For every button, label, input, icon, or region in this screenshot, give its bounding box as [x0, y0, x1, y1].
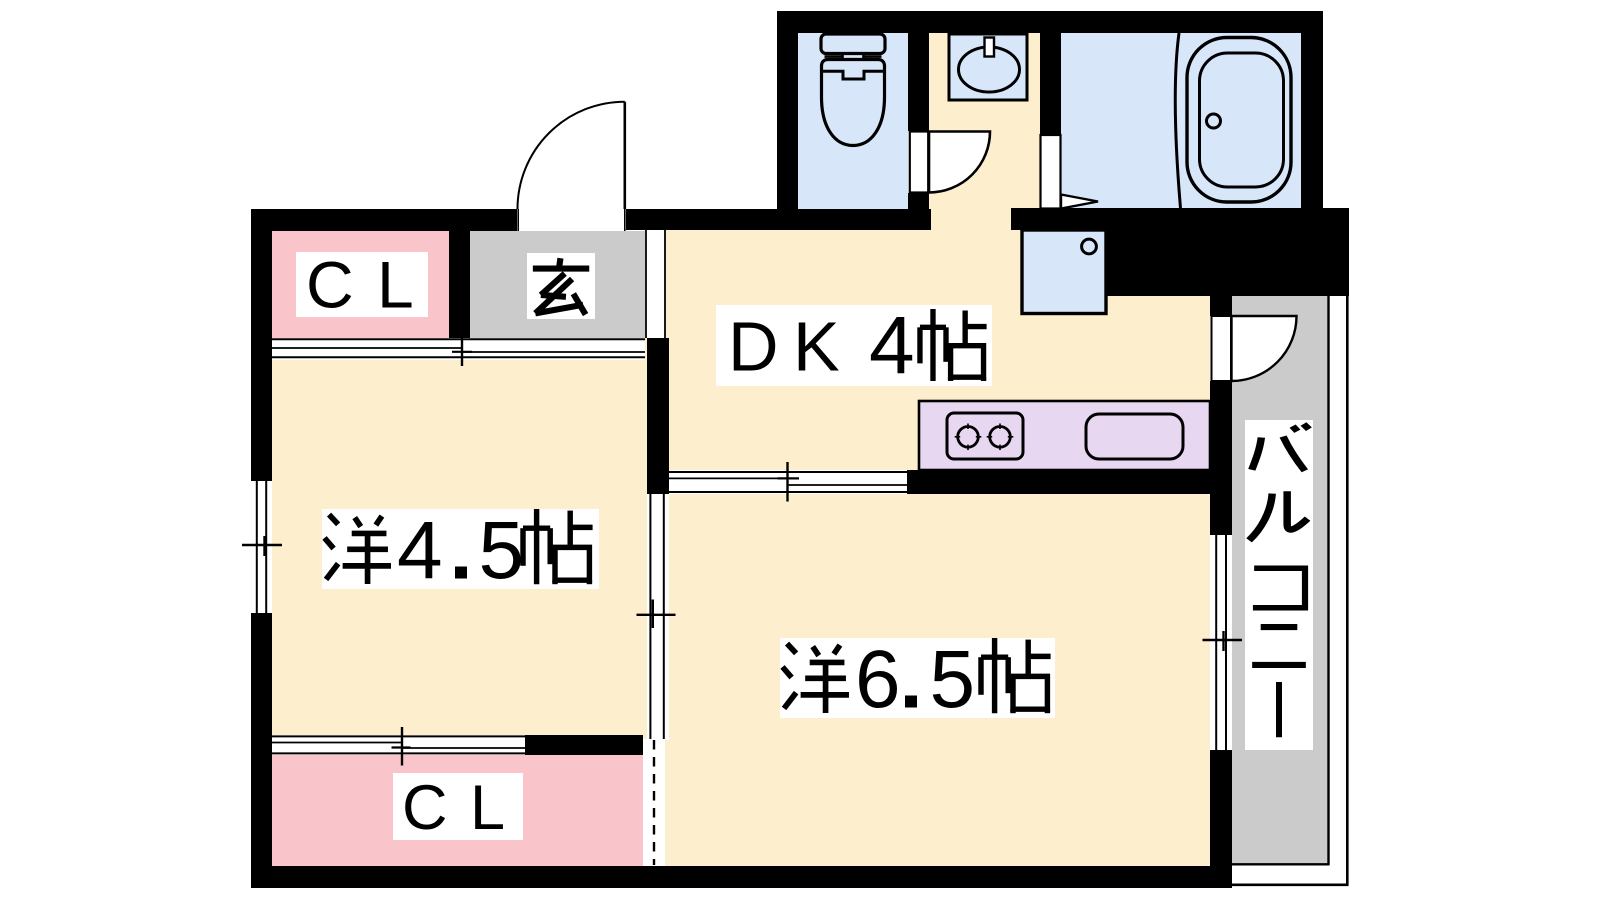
svg-text:C: C: [306, 248, 354, 322]
svg-text:L: L: [377, 248, 414, 322]
svg-text:6: 6: [855, 634, 901, 725]
svg-text:C: C: [402, 773, 448, 843]
svg-text:5: 5: [930, 634, 976, 725]
svg-text:5: 5: [479, 505, 525, 596]
svg-text:4: 4: [869, 300, 915, 391]
svg-text:K: K: [793, 308, 840, 386]
svg-text:L: L: [470, 773, 505, 843]
svg-text:4: 4: [397, 505, 443, 596]
svg-text:D: D: [728, 308, 779, 386]
